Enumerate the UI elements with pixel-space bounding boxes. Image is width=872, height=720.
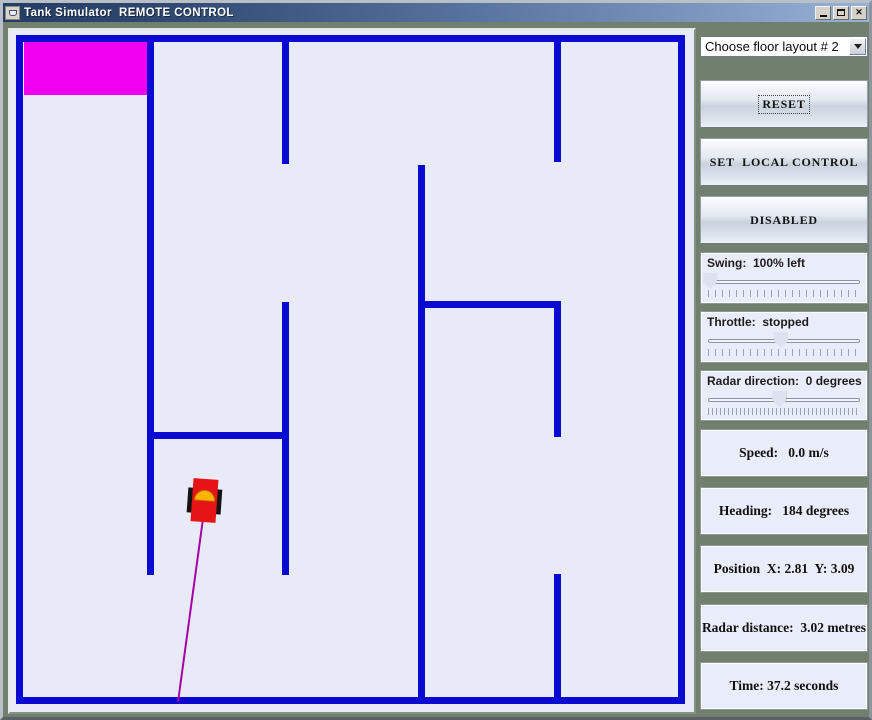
radar-distance-readout: Radar distance: 3.02 metres (700, 604, 868, 652)
radar-direction-slider-thumb[interactable] (772, 391, 786, 407)
minimize-button[interactable] (815, 6, 831, 20)
maze-wall (16, 35, 23, 704)
reset-button[interactable]: RESET (700, 80, 868, 128)
radar-direction-slider-ticks (708, 408, 860, 415)
maximize-button[interactable] (833, 6, 849, 20)
maze-wall (678, 35, 685, 704)
window-title: Tank Simulator REMOTE CONTROL (24, 7, 234, 19)
minimize-icon (820, 15, 827, 17)
disabled-button[interactable]: DISABLED (700, 196, 868, 244)
combo-arrow-button[interactable] (849, 38, 866, 55)
reset-button-label: RESET (758, 95, 809, 114)
position-readout-text: Position X: 2.81 Y: 3.09 (714, 561, 855, 577)
time-readout-text: Time: 37.2 seconds (730, 678, 839, 694)
radar-direction-slider-panel: Radar direction: 0 degrees (700, 370, 868, 421)
maximize-icon (837, 9, 845, 16)
title-bar[interactable]: Tank Simulator REMOTE CONTROL ✕ (3, 3, 869, 22)
maze-wall (554, 574, 561, 704)
app-icon (5, 6, 20, 20)
tank (186, 478, 223, 523)
chevron-down-icon (854, 44, 862, 49)
maze-wall (282, 42, 289, 164)
maze-wall (147, 42, 154, 575)
speed-readout-text: Speed: 0.0 m/s (739, 445, 829, 461)
maze-wall (418, 165, 425, 704)
speed-readout: Speed: 0.0 m/s (700, 429, 868, 477)
maze-wall (16, 697, 685, 704)
app-window: Tank Simulator REMOTE CONTROL ✕ Choose f… (0, 0, 872, 720)
position-readout: Position X: 2.81 Y: 3.09 (700, 545, 868, 593)
maze-wall (418, 301, 561, 308)
window-content: Choose floor layout # 2 RESET SET LOCAL … (3, 22, 869, 717)
radar-distance-readout-text: Radar distance: 3.02 metres (702, 620, 866, 636)
set-local-control-button[interactable]: SET LOCAL CONTROL (700, 138, 868, 186)
throttle-slider-thumb[interactable] (774, 332, 788, 348)
maze-wall (554, 42, 561, 162)
radar-beam (178, 504, 205, 702)
throttle-slider-panel: Throttle: stopped (700, 311, 868, 363)
throttle-slider-label: Throttle: stopped (707, 315, 861, 329)
maze-wall (147, 432, 289, 439)
throttle-slider-ticks (708, 349, 860, 356)
floor-layout-select[interactable]: Choose floor layout # 2 (700, 36, 868, 57)
swing-slider-label: Swing: 100% left (707, 256, 861, 270)
close-button[interactable]: ✕ (851, 6, 867, 20)
swing-slider-ticks (708, 290, 860, 297)
swing-slider-track[interactable] (708, 280, 860, 284)
maze-wall (16, 35, 685, 42)
maze-wall (554, 308, 561, 437)
disabled-button-label: DISABLED (750, 213, 818, 228)
time-readout: Time: 37.2 seconds (700, 662, 868, 710)
close-icon: ✕ (855, 8, 863, 17)
swing-slider-thumb[interactable] (703, 273, 717, 289)
maze-canvas (10, 30, 694, 712)
floor-layout-value: Choose floor layout # 2 (701, 39, 849, 54)
swing-slider-panel: Swing: 100% left (700, 252, 868, 304)
radar-direction-slider-label: Radar direction: 0 degrees (707, 374, 861, 388)
heading-readout: Heading: 184 degrees (700, 487, 868, 535)
heading-readout-text: Heading: 184 degrees (719, 503, 849, 519)
control-sidebar: Choose floor layout # 2 RESET SET LOCAL … (700, 22, 868, 717)
set-local-control-label: SET LOCAL CONTROL (710, 155, 859, 170)
maze-panel (8, 28, 696, 714)
goal-area (24, 41, 148, 95)
